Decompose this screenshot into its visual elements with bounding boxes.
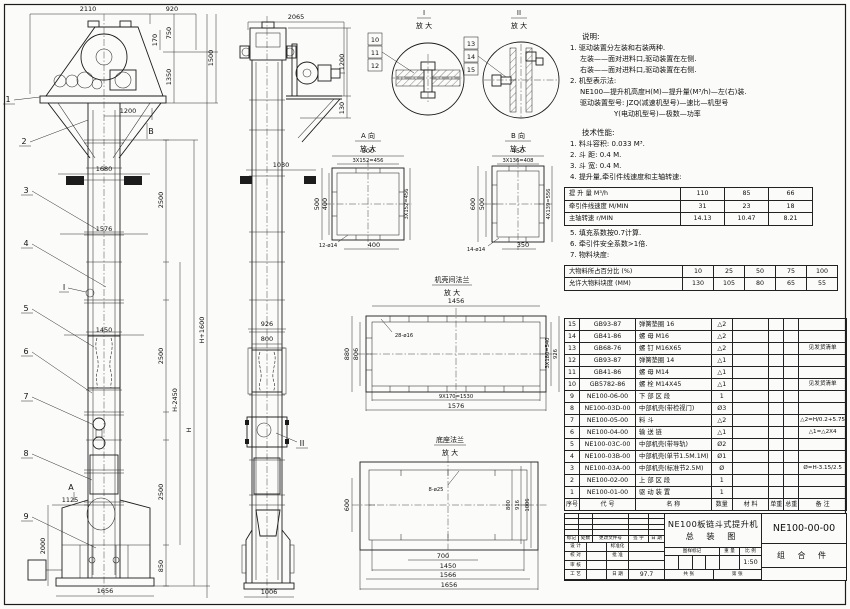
dim-label: 1576 (448, 402, 465, 410)
bom-cell: 螺 母 M16 (636, 330, 712, 342)
hole-callout: 28-ø16 (395, 333, 413, 339)
balloon-5: 5 (23, 304, 28, 313)
bom-cell (784, 354, 799, 366)
bom-cell: NE100-01-00 (580, 486, 636, 498)
balloon-11: 11 (371, 49, 379, 57)
front-view (28, 14, 166, 595)
bom-cell (769, 438, 784, 450)
bom-cell (732, 438, 768, 450)
rev-label-date: 日 期 (649, 536, 665, 543)
detail-ii: II 放 大 13 14 15 (464, 9, 559, 118)
size-row-value: 100 (807, 265, 838, 278)
bom-cell (769, 486, 784, 498)
bom-cell (769, 390, 784, 402)
perf-row-value: 10.47 (725, 213, 769, 226)
dim-label: 170 (151, 34, 159, 46)
bom-cell: 12 (565, 354, 580, 366)
balloon-15: 15 (467, 66, 475, 74)
bom-cell (799, 486, 847, 498)
bom-cell (799, 402, 847, 414)
dim-label: 880 (343, 348, 351, 360)
bom-cell (784, 330, 799, 342)
bom-cell (784, 462, 799, 474)
dim-label: 1656 (441, 581, 458, 589)
bom-cell: NE100-02-00 (580, 474, 636, 486)
bom-cell (799, 366, 847, 378)
dim-label: H-2450 (171, 388, 179, 412)
stamp-label: 图样标记 (665, 548, 720, 556)
bom-cell: 弹簧垫圈 16 (636, 318, 712, 330)
size-row-label: 允许大物料块度 (MM) (565, 278, 683, 291)
bom-cell: NE100-03A-00 (580, 462, 636, 474)
dim-label: 3X180=540 (545, 337, 551, 368)
bom-cell: 10 (565, 378, 580, 390)
dim-label: H (185, 427, 193, 432)
note-line: 左装——面对进料口,驱动装置在左侧. (562, 54, 847, 65)
bom-cell (732, 426, 768, 438)
bom-header-name: 名 称 (636, 498, 712, 510)
sig-blank (587, 552, 607, 561)
dim-label: 500 (313, 198, 321, 210)
sig-label: 审 核 (565, 561, 587, 570)
perf-row: 提 升 量 M³/h1108566 (565, 188, 813, 201)
bom-cell: Ø3 (711, 402, 732, 414)
bom-row: 11GB41-86螺 母 M14△1 (565, 366, 847, 378)
dim-label: 800 (506, 500, 512, 510)
bom-cell: 15 (565, 318, 580, 330)
perf-row-label: 主轴转速 r/MIN (565, 213, 681, 226)
note-line: 驱动装置型号: JZQ(减速机型号)—速比—机型号 (562, 98, 847, 109)
bom-cell: 1 (565, 486, 580, 498)
right-panel: 说明: 1. 驱动装置分左装和右装两种. 左装——面对进料口,驱动装置在左侧. … (562, 30, 847, 581)
bom-cell: △1=△2X4 (799, 426, 847, 438)
dim-label: 400 (321, 198, 329, 210)
dim-label: 2110 (80, 5, 97, 13)
titleblock-title: NE100板链斗式提升机 总 装 图 (665, 514, 762, 548)
bom-cell: GB93-87 (580, 318, 636, 330)
balloon-10: 10 (371, 36, 379, 44)
balloon-12: 12 (371, 62, 379, 70)
balloon-3: 3 (23, 186, 28, 195)
bom-cell (769, 366, 784, 378)
section-a-marker: A (68, 483, 74, 492)
bom-cell: NE100-03D-00 (580, 402, 636, 414)
bom-header-remark: 备 注 (799, 498, 847, 510)
size-row-value: 65 (776, 278, 807, 291)
dim-label: 3X136=408 (502, 158, 533, 164)
note-line: 1. 驱动装置分左装和右装两种. (562, 43, 847, 54)
dim-label: 926 (261, 320, 273, 328)
tech-section: 技术性能: 1. 料斗容积: 0.033 M³. 2. 斗 距: 0.4 M. … (562, 126, 847, 291)
bom-cell (799, 438, 847, 450)
stamp-box (679, 556, 693, 570)
sheets-label: 共 张 (665, 570, 714, 580)
bom-cell: 7 (565, 414, 580, 426)
note-line: 2. 机型表示法: (562, 76, 847, 87)
bom-cell (799, 450, 847, 462)
sig-blank (629, 561, 665, 570)
bom-cell (784, 390, 799, 402)
dim-label: 1350 (165, 69, 173, 86)
bom-row: 12GB93-87弹簧垫圈 14△1 (565, 354, 847, 366)
bom-cell: 见发货清单 (799, 378, 847, 390)
titleblock: 标记 处数 更改文件号 签 字 日 期 设 计标准化校 对批 准审 核工 艺日 … (564, 513, 847, 581)
bom-cell (769, 474, 784, 486)
bom-table-body: 15GB93-87弹簧垫圈 16△214GB41-86螺 母 M16△213GB… (565, 318, 847, 498)
bom-cell (784, 414, 799, 426)
tech-line: 7. 物料块度: (562, 250, 847, 261)
drawing-title-line1: NE100板链斗式提升机 (668, 519, 758, 530)
size-row-value: 130 (683, 278, 714, 291)
bom-cell: 1 (711, 474, 732, 486)
assembly-type: 组 合 件 (762, 544, 846, 568)
size-row-label: 大物料所占百分比 (%) (565, 265, 683, 278)
sig-label: 批 准 (607, 552, 629, 561)
tech-line: 6. 牵引件安全系数>1倍. (562, 239, 847, 250)
note-line: 右装——面对进料口,驱动装置在右侧. (562, 65, 847, 76)
sig-label: 设 计 (565, 543, 587, 552)
bom-cell: GB5782-86 (580, 378, 636, 390)
balloon-7: 7 (23, 392, 28, 401)
detail-ii-title: II (517, 9, 521, 17)
bom-cell: NE100-05-00 (580, 414, 636, 426)
dim-label: 1030 (273, 161, 290, 169)
bom-cell: 6 (565, 426, 580, 438)
notes-section: 说明: 1. 驱动装置分左装和右装两种. 左装——面对进料口,驱动装置在左侧. … (562, 30, 847, 120)
dim-label: 3X152=456 (352, 158, 383, 164)
bom-cell: 螺 钉 M16X65 (636, 342, 712, 354)
bom-cell (799, 354, 847, 366)
bom-cell: 2 (565, 474, 580, 486)
casing-flange-title: 机壳间法兰 (435, 275, 470, 284)
bom-cell (799, 330, 847, 342)
stamp-box (706, 556, 720, 570)
bom-cell: 5 (565, 438, 580, 450)
bom-cell: Ø1 (711, 450, 732, 462)
titleblock-blank (762, 568, 846, 580)
bom-cell: 8 (565, 402, 580, 414)
bom-cell: GB41-86 (580, 366, 636, 378)
bom-cell: 中部机壳(带检视门) (636, 402, 712, 414)
dim-label: 1125 (62, 496, 79, 504)
size-row: 大物料所占百分比 (%)10255075100 (565, 265, 838, 278)
bom-cell: △1 (711, 354, 732, 366)
sig-label: 工 艺 (565, 570, 587, 579)
bom-row: 13GB68-76螺 钉 M16X65△2见发货清单 (565, 342, 847, 354)
bom-cell (732, 366, 768, 378)
bom-cell: NE100-03B-00 (580, 450, 636, 462)
bom-cell: NE100-06-00 (580, 390, 636, 402)
bom-cell: 1 (711, 486, 732, 498)
bom-row: 3NE100-03A-00中部机壳(标准节2.5M)ØØ=H-3.15/2.5 (565, 462, 847, 474)
bom-cell (769, 414, 784, 426)
sig-blank (629, 552, 665, 561)
bom-cell: △1 (711, 426, 732, 438)
bom-cell: 输 送 链 (636, 426, 712, 438)
bom-cell: 4 (565, 450, 580, 462)
bom-cell: Ø=H-3.15/2.5 (799, 462, 847, 474)
stamp-box (665, 556, 679, 570)
bom-cell (769, 450, 784, 462)
bom-cell: △1 (711, 378, 732, 390)
bom-row: 9NE100-06-00下 部 区 段1 (565, 390, 847, 402)
section-b-title: B 向 (511, 131, 525, 140)
perf-row: 牵引件线速度 M/MIN312318 (565, 200, 813, 213)
dim-label: 500 (478, 198, 486, 210)
size-table-body: 大物料所占百分比 (%)10255075100允许大物料块度 (MM)13010… (565, 265, 838, 290)
bom-header-seq: 序号 (565, 498, 580, 510)
perf-row: 主轴转速 r/MIN14.1310.478.21 (565, 213, 813, 226)
detail-i-enlarge-label: 放 大 (416, 21, 432, 30)
tech-title: 技术性能: (562, 126, 847, 139)
perf-row-value: 110 (681, 188, 725, 201)
dim-label: 2000 (39, 538, 47, 555)
section-a-title: A 向 (361, 131, 375, 140)
bom-header-totalweight: 总重 (784, 498, 799, 510)
perf-row-value: 14.13 (681, 213, 725, 226)
perf-row-value: 18 (769, 200, 813, 213)
bom-cell (732, 330, 768, 342)
dim-label: 500 (362, 147, 374, 155)
bom-row: 8NE100-03D-00中部机壳(带检视门)Ø3 (565, 402, 847, 414)
bom-header-row: 序号 代 号 名 称 数量 材 料 单重 总重 备 注 (565, 498, 847, 510)
bom-cell (799, 390, 847, 402)
tech-line: 5. 填充系数按0.7计算. (562, 228, 847, 239)
perf-row-value: 66 (769, 188, 813, 201)
bom-table: 15GB93-87弹簧垫圈 16△214GB41-86螺 母 M16△213GB… (564, 318, 847, 511)
hole-callout: 12-ø14 (319, 243, 338, 249)
performance-table: 提 升 量 M³/h1108566牵引件线速度 M/MIN312318主轴转速 … (564, 187, 813, 226)
sig-blank (587, 561, 607, 570)
sig-blank (587, 543, 607, 552)
bom-header-qty: 数量 (711, 498, 732, 510)
bom-cell: △2 (711, 414, 732, 426)
bom-cell: 驱 动 装 置 (636, 486, 712, 498)
bom-cell (784, 450, 799, 462)
bom-cell (784, 474, 799, 486)
dim-label: 916 (515, 500, 521, 510)
dim-label: 3X152=456 (404, 188, 410, 219)
bom-cell: Ø (711, 462, 732, 474)
bom-cell: 上 部 区 段 (636, 474, 712, 486)
sig-label: 标准化 (607, 543, 629, 552)
bom-row: 1NE100-01-00驱 动 装 置1 (565, 486, 847, 498)
balloon-4: 4 (23, 239, 28, 248)
bom-cell: △2 (711, 330, 732, 342)
dim-label: 1656 (97, 587, 114, 595)
bom-cell (769, 378, 784, 390)
dim-label: 920 (166, 5, 178, 13)
stamp-box (693, 556, 707, 570)
hole-callout: 8-ø25 (429, 487, 444, 493)
sig-blank (587, 570, 607, 579)
bom-cell: 中部机壳(单节1.5M.1M) (636, 450, 712, 462)
bom-row: 2NE100-02-00上 部 区 段1 (565, 474, 847, 486)
dim-label: 700 (437, 552, 449, 560)
dim-label: 1576 (96, 225, 113, 233)
bom-cell: 9 (565, 390, 580, 402)
bom-header-code: 代 号 (580, 498, 636, 510)
drawing-number: NE100-00-00 (762, 514, 846, 544)
bom-cell: 料 斗 (636, 414, 712, 426)
bom-cell: 见发货清单 (799, 342, 847, 354)
side-view: 2065 1200 130 (240, 13, 351, 600)
bom-header-unitweight: 单重 (769, 498, 784, 510)
detail-ii-enlarge-label: 放 大 (511, 21, 527, 30)
performance-table-body: 提 升 量 M³/h1108566牵引件线速度 M/MIN312318主轴转速 … (565, 188, 813, 226)
notes-title: 说明: (562, 30, 847, 43)
balloon-8: 8 (23, 449, 28, 458)
balloon-9: 9 (23, 512, 28, 521)
bom-cell: 14 (565, 330, 580, 342)
perf-row-label: 提 升 量 M³/h (565, 188, 681, 201)
bom-cell (784, 486, 799, 498)
bom-cell (732, 354, 768, 366)
tech-line: 1. 料斗容积: 0.033 M³. (562, 139, 847, 150)
balloon-6: 6 (23, 347, 28, 356)
drawing-sheet: 2110 920 170 750 1350 1500 1200 1680 157… (0, 0, 850, 609)
bom-cell: 螺 栓 M14X45 (636, 378, 712, 390)
sig-label (607, 561, 629, 570)
bom-cell: 中部机壳(带导轨) (636, 438, 712, 450)
base-flange-enlarge-label: 放 大 (442, 448, 458, 457)
dim-label: 1200 (338, 54, 346, 71)
note-line: NE100—提升机高度H(M)—提升量(M³/h)—左(右)装. (562, 87, 847, 98)
dim-label: 1450 (440, 562, 457, 570)
bom-cell (732, 390, 768, 402)
dim-label: 850 (157, 560, 165, 572)
bom-cell (784, 438, 799, 450)
dim-label: 2500 (157, 348, 165, 365)
dim-label: 1566 (440, 571, 457, 579)
section-b-view: B 向 放 大 450 3X136=408 600 500 350 14-ø14… (467, 131, 552, 253)
size-row-value: 105 (714, 278, 745, 291)
hole-callout: 14-ø14 (467, 247, 486, 253)
bom-cell (732, 318, 768, 330)
dim-label: 1200 (120, 107, 137, 115)
perf-row-value: 85 (725, 188, 769, 201)
bom-cell (732, 402, 768, 414)
bom-cell: △2=H/0.2+5.75 (799, 414, 847, 426)
bom-cell (799, 474, 847, 486)
bom-cell (784, 402, 799, 414)
bom-cell (769, 462, 784, 474)
balloon-13: 13 (467, 40, 475, 48)
dim-label: 800 (261, 335, 273, 343)
bom-cell (769, 402, 784, 414)
bom-cell (769, 354, 784, 366)
dim-label: 450 (512, 147, 524, 155)
dim-label: H+1600 (198, 317, 206, 344)
dim-label: 926 (553, 349, 559, 359)
dim-label: 130 (338, 102, 346, 114)
size-row-value: 50 (745, 265, 776, 278)
bom-cell: 下 部 区 段 (636, 390, 712, 402)
bom-cell (784, 342, 799, 354)
balloon-1: 1 (5, 95, 10, 104)
base-flange-title: 底座法兰 (436, 435, 464, 444)
bom-cell (732, 486, 768, 498)
dim-label: 4X139=556 (546, 188, 552, 219)
casing-flange-enlarge-label: 放 大 (444, 288, 460, 297)
sig-label: 日 期 (607, 570, 629, 579)
bom-cell: 中部机壳(标准节2.5M) (636, 462, 712, 474)
dim-label: 806 (352, 348, 360, 360)
tech-line: 2. 斗 距: 0.4 M. (562, 150, 847, 161)
section-a-view: A 向 放 大 500 3X152=456 500 400 400 12-ø14… (313, 131, 412, 249)
bom-cell: △2 (711, 342, 732, 354)
size-row-value: 75 (776, 265, 807, 278)
section-b-marker: B (148, 127, 154, 136)
bom-cell: GB93-87 (580, 354, 636, 366)
bom-cell (799, 318, 847, 330)
size-row-value: 80 (745, 278, 776, 291)
bom-cell (769, 426, 784, 438)
dim-label: 2065 (288, 13, 305, 21)
bom-cell (732, 462, 768, 474)
bom-cell (732, 450, 768, 462)
drawing-title-line2: 总 装 图 (686, 531, 741, 542)
size-row-value: 25 (714, 265, 745, 278)
balloon-2: 2 (21, 137, 26, 146)
dim-label: 1456 (448, 297, 465, 305)
perf-row-value: 8.21 (769, 213, 813, 226)
scale-label: 比 例 (740, 548, 762, 556)
dim-label: 1450 (96, 326, 113, 334)
rev-label-mark: 标记 (565, 536, 579, 543)
perf-row-value: 23 (725, 200, 769, 213)
perf-row-value: 31 (681, 200, 725, 213)
size-row: 允许大物料块度 (MM)130105806555 (565, 278, 838, 291)
detail-ii-marker: II (300, 439, 305, 448)
bom-cell: NE100-04-00 (580, 426, 636, 438)
size-row-value: 55 (807, 278, 838, 291)
bom-row: 6NE100-04-00输 送 链△1△1=△2X4 (565, 426, 847, 438)
tech-line: 3. 斗 宽: 0.4 M. (562, 161, 847, 172)
bom-cell (769, 330, 784, 342)
bom-row: 4NE100-03B-00中部机壳(单节1.5M.1M)Ø1 (565, 450, 847, 462)
weight-value (720, 556, 740, 570)
rev-label-sign: 签 字 (629, 536, 649, 543)
sig-label: 校 对 (565, 552, 587, 561)
balloon-14: 14 (467, 53, 475, 61)
perf-row-label: 牵引件线速度 M/MIN (565, 200, 681, 213)
dim-label: 2500 (157, 192, 165, 209)
bom-cell: GB41-86 (580, 330, 636, 342)
detail-i-title: I (423, 9, 425, 17)
bom-cell: Ø2 (711, 438, 732, 450)
bom-cell (732, 474, 768, 486)
date-value: 97.7 (629, 570, 665, 579)
bom-cell: △2 (711, 318, 732, 330)
dim-label: 600 (343, 499, 351, 511)
bom-cell: 13 (565, 342, 580, 354)
rev-label-count: 处数 (579, 536, 593, 543)
note-line: Y(电动机型号)—极数—功率 (562, 109, 847, 120)
size-row-value: 10 (683, 265, 714, 278)
bom-cell: 螺 母 M14 (636, 366, 712, 378)
bom-cell: 1 (711, 390, 732, 402)
dim-label: 350 (517, 241, 529, 249)
front-view-dimensions: 2110 920 170 750 1350 1500 1200 1680 157… (30, 5, 218, 598)
part-balloons: 1 2 3 4 5 6 7 8 9 I A B (3, 95, 154, 548)
material-size-table: 大物料所占百分比 (%)10255075100允许大物料块度 (MM)13010… (564, 265, 838, 291)
bom-cell (769, 318, 784, 330)
dim-label: 400 (368, 241, 380, 249)
dim-label: 600 (469, 198, 477, 210)
dim-label: 2500 (157, 484, 165, 501)
dim-label: 1680 (96, 165, 113, 173)
